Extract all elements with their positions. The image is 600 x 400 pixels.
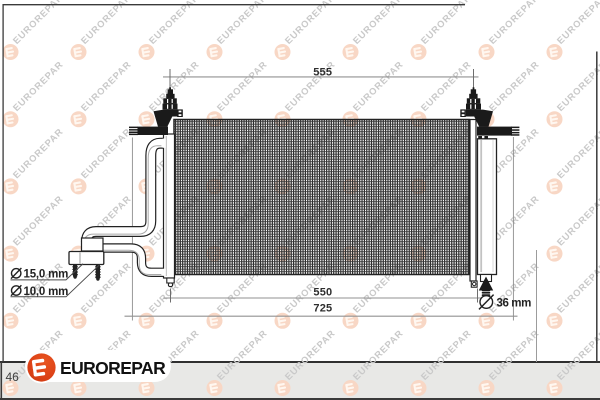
svg-text:550: 550 bbox=[313, 287, 332, 299]
svg-text:10,0 mm: 10,0 mm bbox=[24, 286, 69, 298]
svg-text:36 mm: 36 mm bbox=[497, 297, 532, 309]
svg-text:555: 555 bbox=[313, 67, 332, 79]
svg-text:15,0 mm: 15,0 mm bbox=[24, 269, 69, 281]
svg-text:725: 725 bbox=[313, 303, 332, 315]
